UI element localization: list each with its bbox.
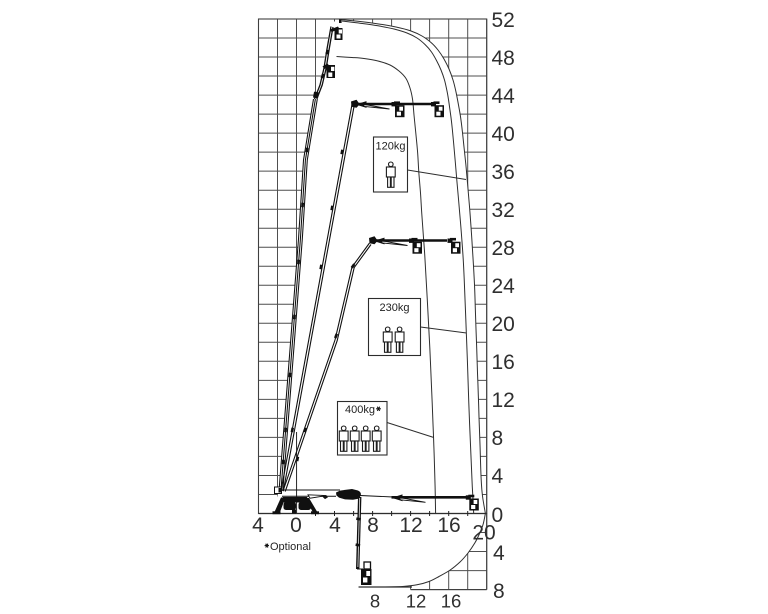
svg-text:8: 8 bbox=[492, 427, 504, 450]
svg-text:12: 12 bbox=[406, 591, 427, 612]
svg-text:4: 4 bbox=[329, 514, 341, 537]
svg-text:4: 4 bbox=[493, 542, 505, 565]
svg-text:0: 0 bbox=[290, 514, 302, 537]
svg-text:24: 24 bbox=[492, 275, 516, 298]
svg-text:400kg: 400kg bbox=[345, 404, 375, 416]
svg-text:28: 28 bbox=[492, 237, 515, 260]
svg-text:52: 52 bbox=[492, 9, 515, 32]
svg-text:12: 12 bbox=[492, 389, 515, 412]
svg-text:36: 36 bbox=[492, 161, 515, 184]
svg-text:40: 40 bbox=[492, 123, 515, 146]
svg-text:8: 8 bbox=[370, 591, 380, 612]
svg-text:48: 48 bbox=[492, 47, 515, 70]
svg-text:4: 4 bbox=[252, 514, 264, 537]
svg-text:16: 16 bbox=[441, 591, 462, 612]
svg-text:8: 8 bbox=[493, 580, 505, 603]
svg-text:44: 44 bbox=[492, 85, 516, 108]
svg-text:8: 8 bbox=[367, 514, 379, 537]
svg-text:Optional: Optional bbox=[270, 541, 311, 553]
svg-text:16: 16 bbox=[437, 514, 460, 537]
svg-text:16: 16 bbox=[492, 351, 515, 374]
svg-text:20: 20 bbox=[492, 313, 515, 336]
svg-text:4: 4 bbox=[492, 465, 504, 488]
svg-text:230kg: 230kg bbox=[380, 302, 410, 314]
svg-text:120kg: 120kg bbox=[376, 140, 406, 152]
svg-text:32: 32 bbox=[492, 199, 515, 222]
svg-text:12: 12 bbox=[399, 514, 422, 537]
